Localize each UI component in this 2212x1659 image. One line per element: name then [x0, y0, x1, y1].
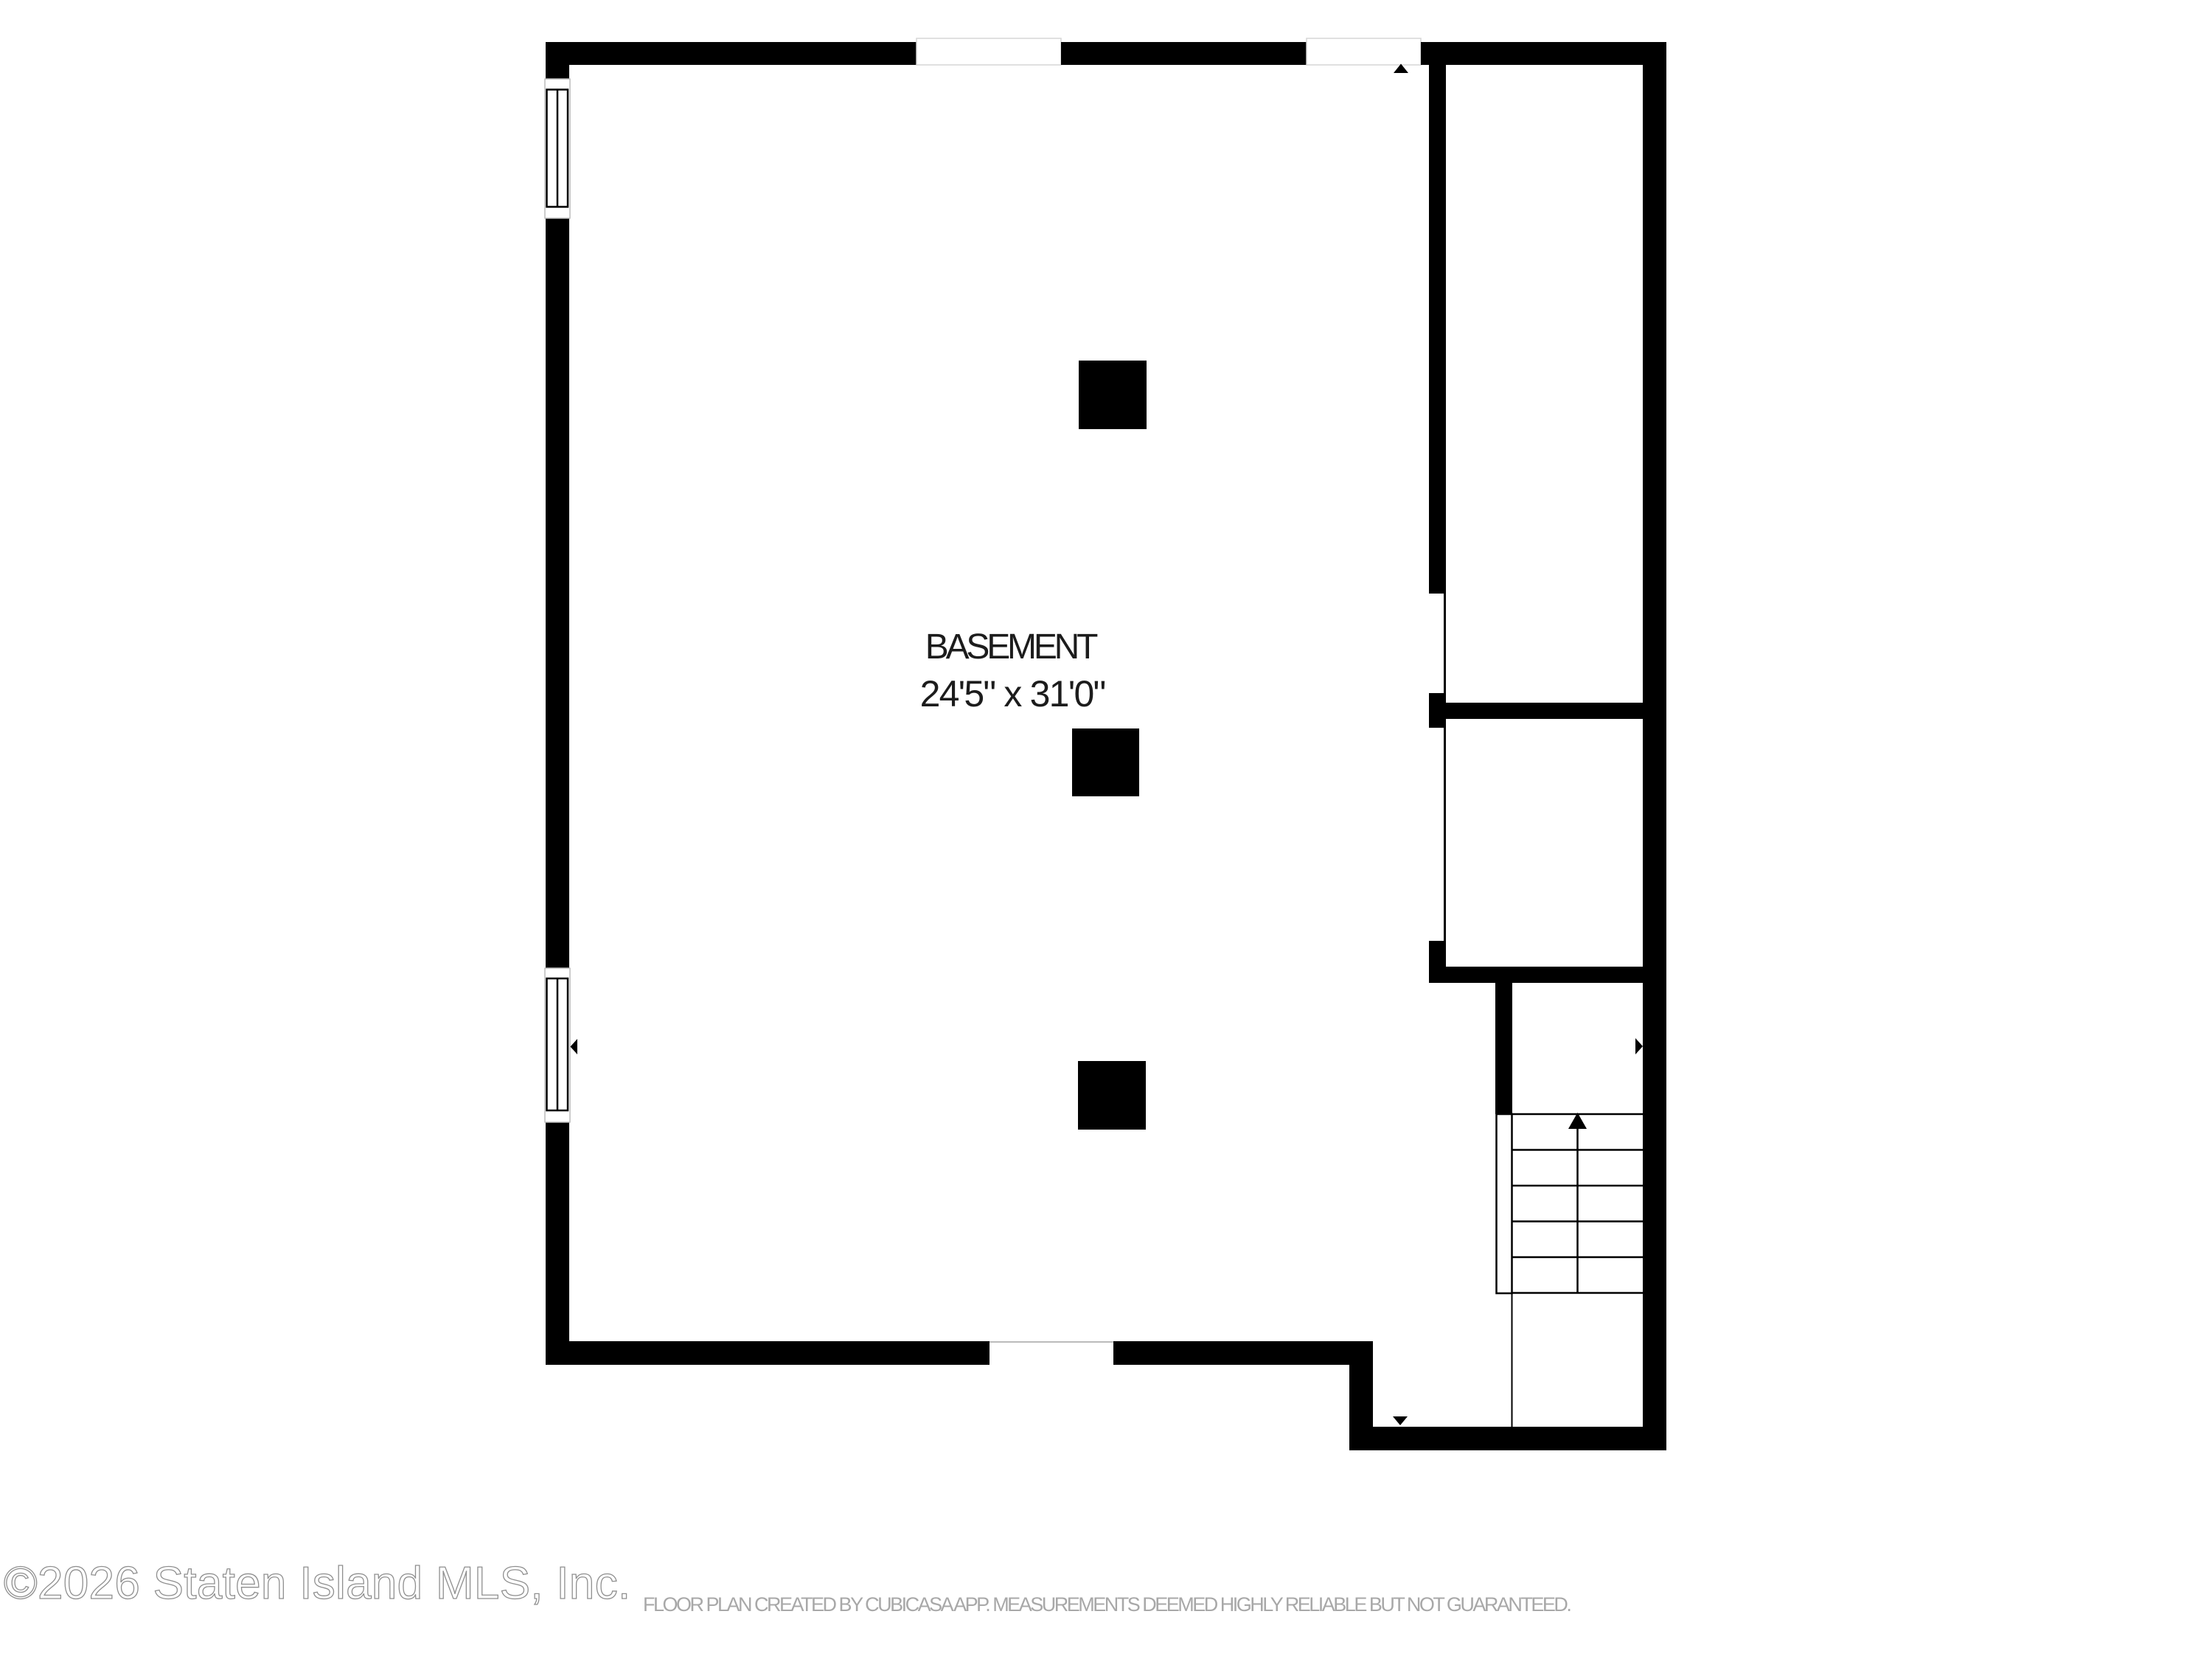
svg-text:FLOOR PLAN CREATED BY CUBICASA: FLOOR PLAN CREATED BY CUBICASA APP. MEAS…	[643, 1593, 1571, 1615]
svg-text:BASEMENT: BASEMENT	[925, 627, 1098, 667]
svg-text:24'5" x 31'0": 24'5" x 31'0"	[920, 673, 1105, 714]
svg-text:©2026 Staten Island MLS, Inc.: ©2026 Staten Island MLS, Inc.	[4, 1558, 631, 1609]
